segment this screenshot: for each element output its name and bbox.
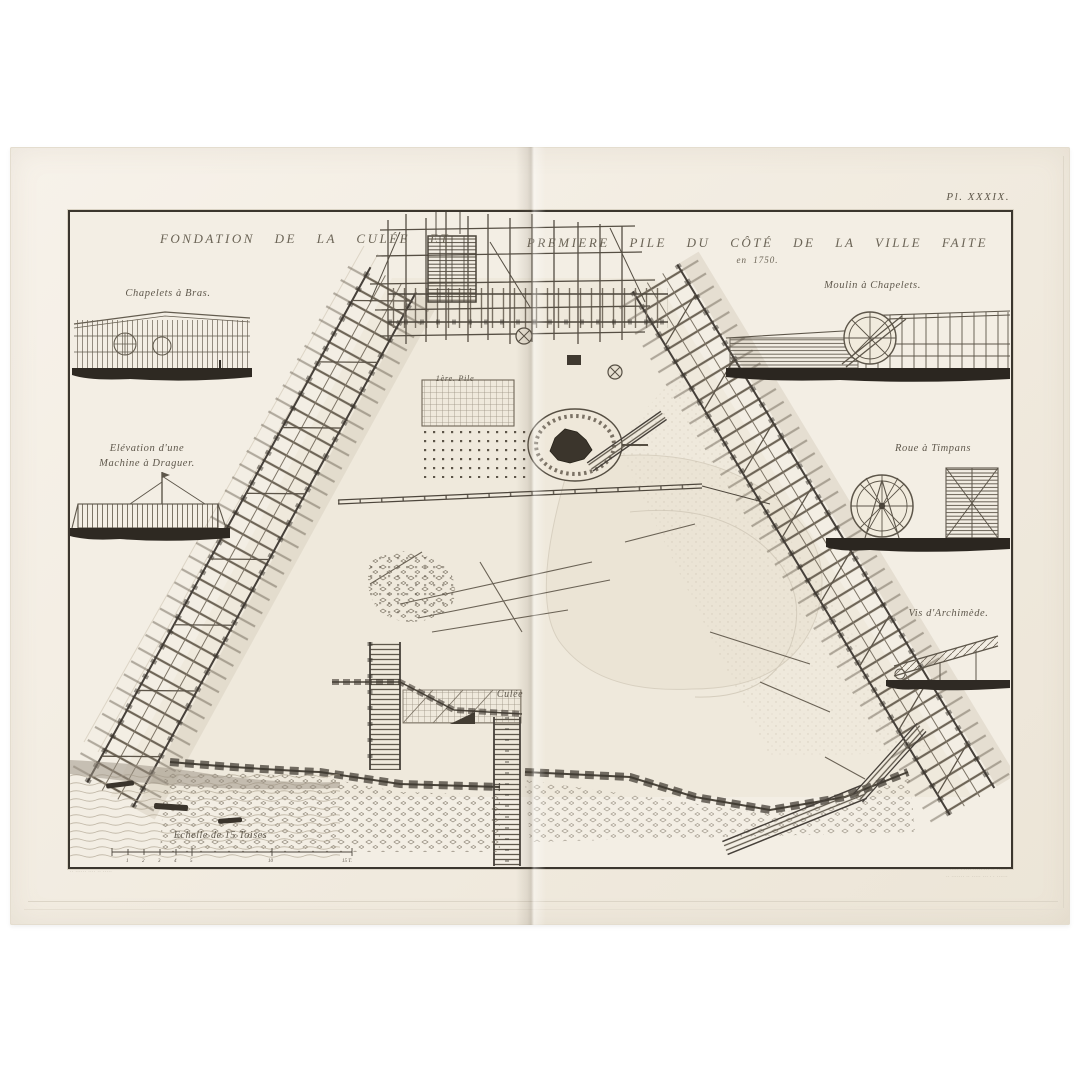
caption-moulin-a-chapelets: Moulin à Chapelets. — [790, 278, 955, 293]
plate-title-right: PREMIERE PILE DU CÔTÉ DE LA VILLE FAITE … — [520, 235, 995, 267]
caption-machine-a-draguer: Elévation d'une Machine à Draguer. — [62, 441, 232, 471]
page-edge-line-2 — [24, 909, 1064, 910]
credit-left: ·· ······ ···· ·· ····· — [70, 869, 112, 876]
scale-label: Echelle de 15 Toises — [128, 828, 313, 843]
vignette-roue-a-timpans — [826, 468, 1010, 552]
river-bank — [70, 760, 340, 860]
caption-machine-line1: Elévation d'une — [62, 441, 232, 456]
plate-title-left: FONDATION DE LA CULÉE ET — [110, 231, 500, 247]
credit-right-line2: ·· ······· ·· ····· ··· · · ······ — [830, 874, 1008, 881]
plate-number: Pl. XXXIX. — [860, 191, 1010, 203]
vignette-moulin-a-chapelets — [726, 311, 1010, 382]
plate-title-year: en 1750. — [737, 255, 779, 265]
caption-vis-archimede: Vis d'Archimède. — [876, 606, 1021, 621]
scanned-engraved-plate: { "plate": { "number": "Pl. XXXIX.", "ti… — [0, 0, 1080, 1080]
vignette-chapelets-a-bras — [72, 312, 252, 381]
annotation-culee: Culée — [478, 687, 542, 702]
plate-frame: 1 2 3 4 5 10 15 T. — [68, 210, 1013, 869]
pile-grid — [422, 380, 530, 478]
page-edge-right — [1063, 156, 1064, 908]
plate-title-right-text: PREMIERE PILE DU CÔTÉ DE LA VILLE FAITE — [527, 235, 988, 250]
annotation-premiere-pile: 1ère. Pile — [418, 371, 492, 386]
caption-machine-line2: Machine à Draguer. — [62, 456, 232, 471]
page-edge-line — [28, 901, 1058, 902]
credit-right: ····· · ···· ····· ··· ·· ······ ·· ····… — [830, 867, 1008, 880]
engraving-canvas: 1 2 3 4 5 10 15 T. — [70, 212, 1010, 866]
scale-tick: 10 — [268, 859, 274, 864]
scale-tick: 15 T. — [342, 859, 352, 864]
caption-roue-a-timpans: Roue à Timpans — [858, 441, 1008, 456]
scale-tick: 1 — [126, 859, 129, 864]
vignette-machine-a-draguer — [70, 472, 230, 541]
caption-chapelets-a-bras: Chapelets à Bras. — [88, 286, 248, 301]
